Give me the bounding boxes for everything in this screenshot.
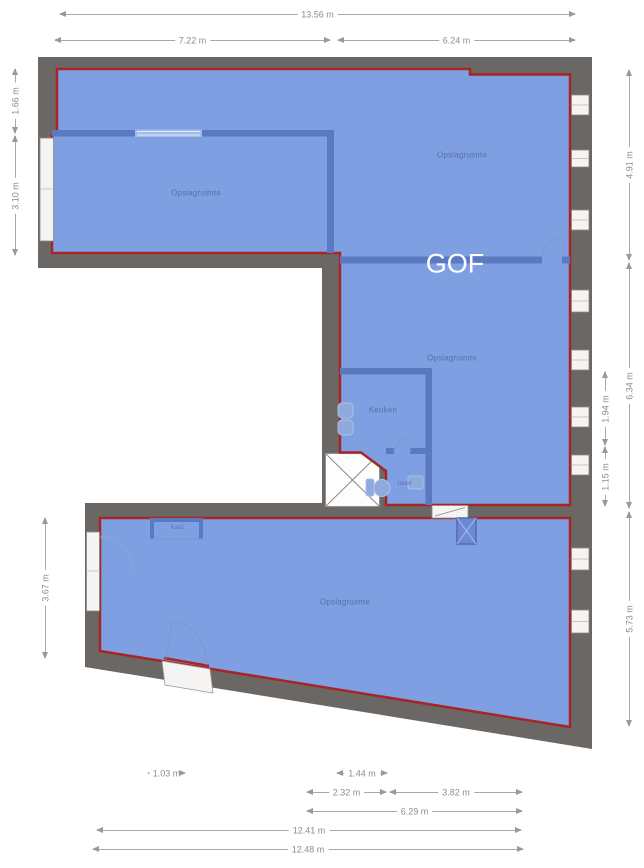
floorplan-drawing <box>0 0 644 868</box>
dimension-bottom-door-offset: 1.03 m <box>148 773 185 774</box>
room-label-top-left: Opslagruimte <box>171 189 221 198</box>
dimension-top-total: 13.56 m <box>60 14 575 15</box>
dimension-left-top: 1.66 m <box>15 69 16 133</box>
room-label-top-right: Opslagruimte <box>437 151 487 160</box>
room-label-middle: Opslagruimte <box>427 354 477 363</box>
dimension-right-inner-bottom: 1.15 m <box>605 447 606 506</box>
dimension-left-bottom: 3.67 m <box>45 518 46 658</box>
floor-name-label: GOF <box>426 249 485 280</box>
inter-unit-door <box>432 506 468 519</box>
dimension-right-bottom: 5.73 m <box>629 512 630 726</box>
dimension-bottom-total-inner: 12.41 m <box>97 830 521 831</box>
dimension-left-middle: 3.10 m <box>15 136 16 255</box>
dimension-right-middle: 6.34 m <box>629 263 630 508</box>
dimension-right-inner-top: 1.94 m <box>605 372 606 445</box>
room-label-toilet: Toilet <box>396 481 411 487</box>
duct-box <box>457 518 476 544</box>
floorplan-page: Opslagruimte Opslagruimte Opslagruimte K… <box>0 0 644 868</box>
room-label-bottom: Opslagruimte <box>320 598 370 607</box>
dimension-bottom-seg-4: 6.29 m <box>307 811 522 812</box>
dimension-bottom-seg-3: 3.82 m <box>390 792 522 793</box>
dimension-bottom-seg-1: 1.44 m <box>337 773 387 774</box>
dimension-bottom-seg-2: 2.32 m <box>307 792 386 793</box>
room-label-closet: Kast <box>171 525 184 531</box>
inner-wall-window <box>135 130 202 138</box>
dimension-top-left-segment: 7.22 m <box>55 40 330 41</box>
dimension-right-top: 4.91 m <box>629 70 630 260</box>
dimension-top-right-segment: 6.24 m <box>338 40 575 41</box>
dimension-bottom-total-outer: 12.48 m <box>93 849 523 850</box>
room-label-kitchen: Keuken <box>369 406 397 415</box>
